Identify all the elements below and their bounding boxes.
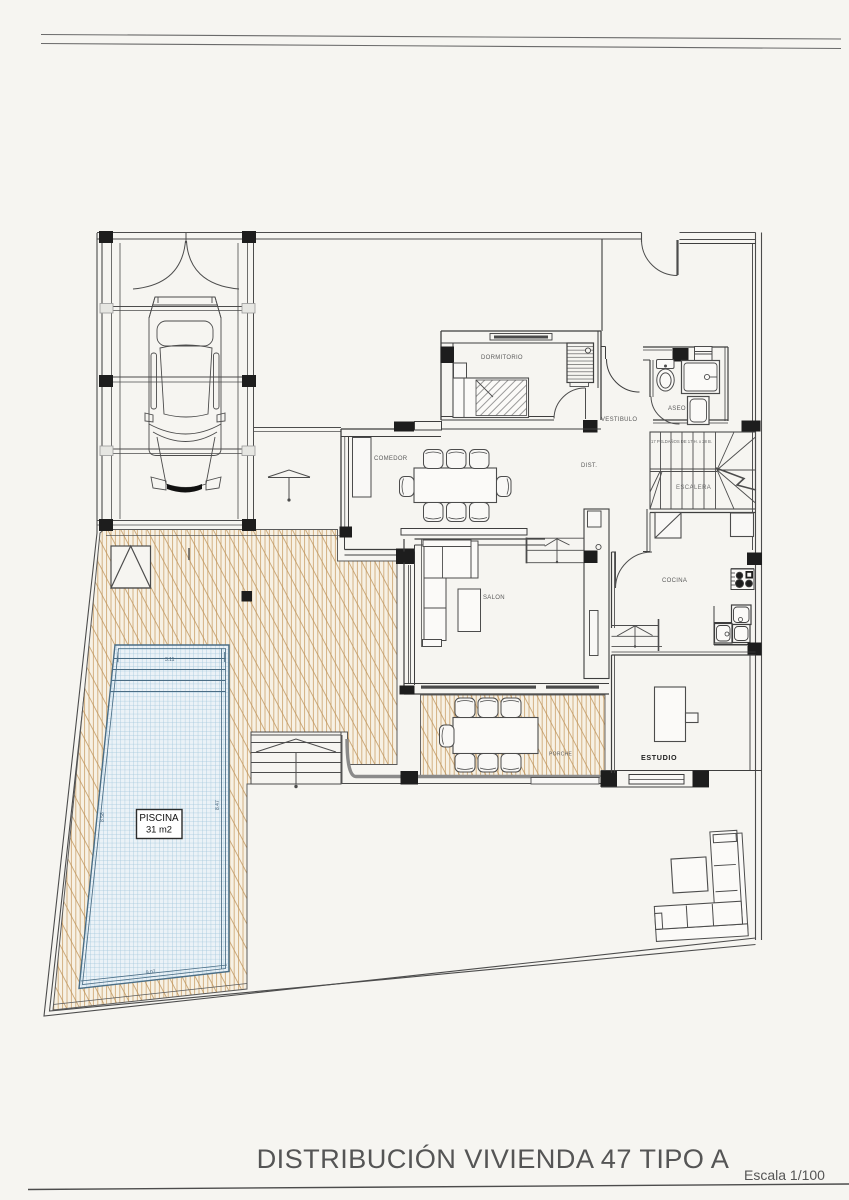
svg-text:ESCALERA: ESCALERA (676, 485, 711, 491)
svg-text:ESTUDIO: ESTUDIO (641, 753, 677, 762)
svg-text:8.58: 8.58 (100, 812, 106, 822)
svg-text:17 PELDAÑOS DE 17 H. x 28 B.: 17 PELDAÑOS DE 17 H. x 28 B. (651, 439, 712, 444)
svg-text:SALON: SALON (483, 595, 505, 601)
svg-text:3.11: 3.11 (165, 657, 175, 663)
svg-text:DIST.: DIST. (581, 463, 597, 469)
svg-text:PORCHE: PORCHE (549, 752, 573, 758)
svg-text:9.07: 9.07 (146, 969, 157, 976)
svg-text:Escala 1/100: Escala 1/100 (744, 1167, 825, 1183)
svg-text:PISCINA: PISCINA (139, 813, 179, 824)
svg-text:8.47: 8.47 (215, 800, 221, 810)
svg-text:31 m2: 31 m2 (146, 824, 172, 835)
svg-text:ASEO: ASEO (668, 406, 686, 412)
svg-text:DORMITORIO: DORMITORIO (481, 355, 523, 361)
svg-text:COMEDOR: COMEDOR (374, 456, 408, 462)
svg-text:VESTIBULO: VESTIBULO (601, 417, 637, 423)
svg-text:DISTRIBUCIÓN VIVIENDA 47 TIPO: DISTRIBUCIÓN VIVIENDA 47 TIPO A (257, 1143, 730, 1174)
svg-text:COCINA: COCINA (662, 578, 687, 584)
